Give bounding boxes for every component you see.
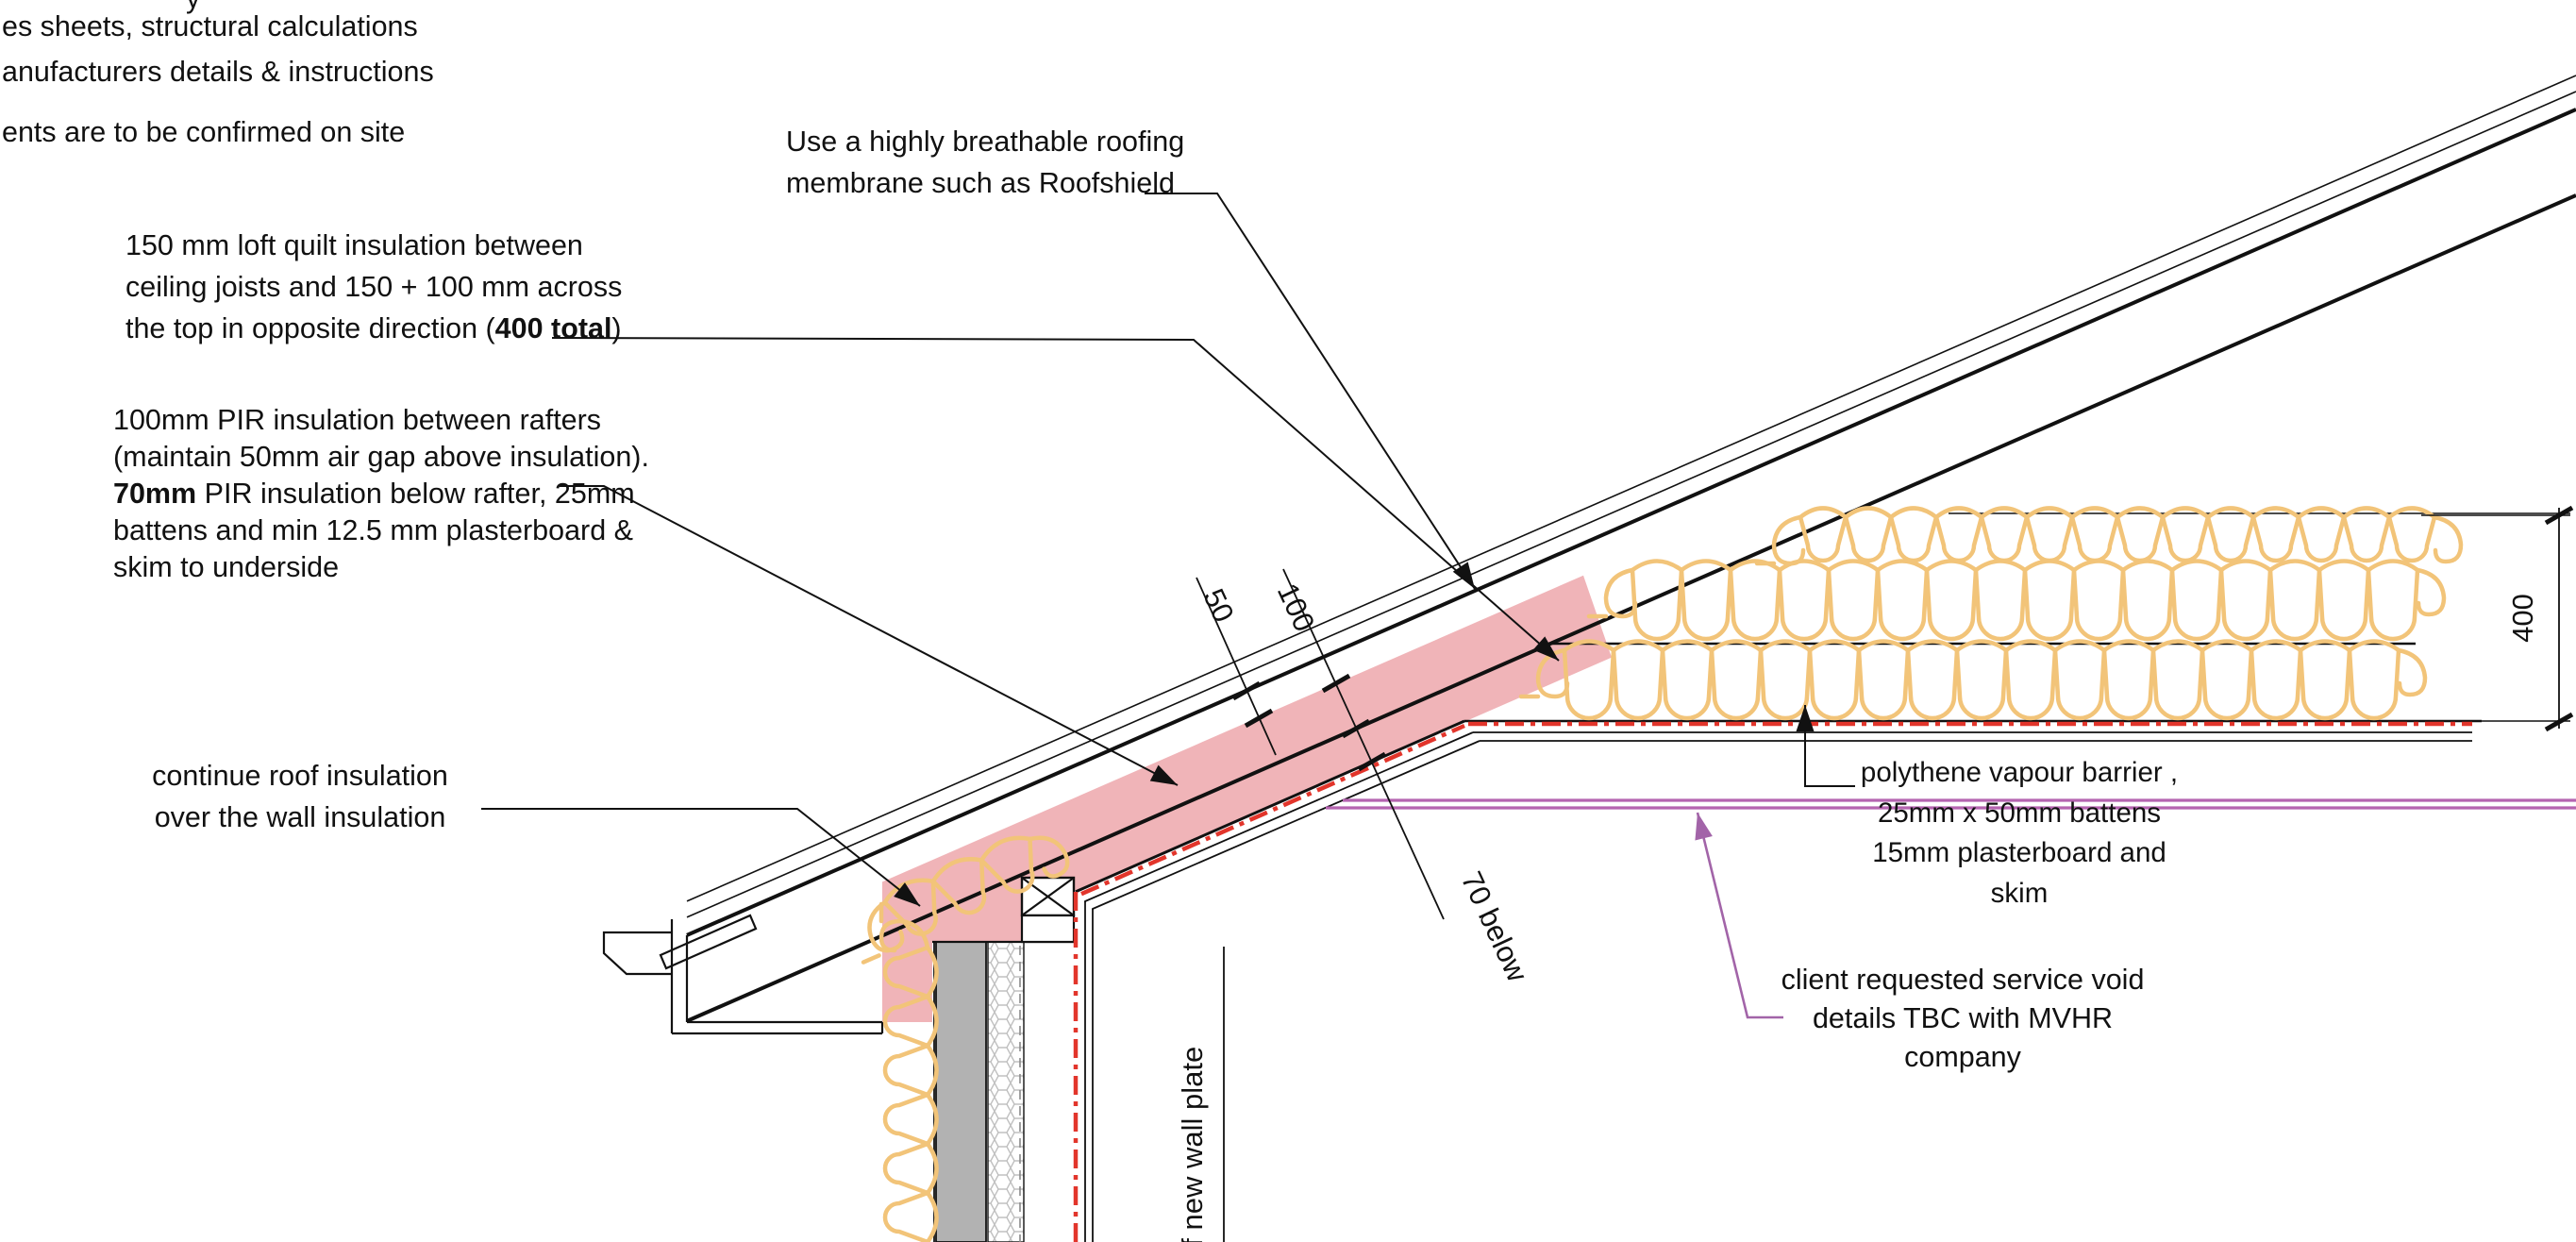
annotation-line: 15mm plasterboard and skim: [1845, 833, 2194, 914]
note-line: anufacturers details & instructions: [2, 49, 434, 94]
annotation-pir: 100mm PIR insulation between rafters (ma…: [113, 402, 649, 586]
construction-detail-drawing: 50 100 70 below 400 of new wall plate: [0, 0, 2576, 1242]
annotation-line: over the wall insulation: [111, 797, 489, 838]
annotation-line: (maintain 50mm air gap above insulation)…: [113, 439, 649, 476]
annotation-line: continue roof insulation: [111, 755, 489, 797]
annotation-service-void: client requested service void details TB…: [1765, 961, 2161, 1077]
annotation-line: the top in opposite direction (400 total…: [125, 308, 622, 349]
annotation-line: battens and min 12.5 mm plasterboard &: [113, 512, 649, 549]
annotation-line: membrane such as Roofshield: [786, 162, 1184, 204]
annotation-line: 25mm x 50mm battens: [1845, 794, 2194, 834]
annotation-line: skim to underside: [113, 549, 649, 586]
leader-lines: [481, 193, 1855, 1017]
annotation-membrane: Use a highly breathable roofing membrane…: [786, 121, 1184, 204]
note-block-documents: es sheets, structural calculations anufa…: [2, 4, 434, 94]
annotation-line: ceiling joists and 150 + 100 mm across: [125, 266, 622, 308]
dim-50-label: 50: [1196, 584, 1240, 628]
note-confirm-on-site: ents are to be confirmed on site: [2, 111, 405, 153]
annotation-vapour-barrier: polythene vapour barrier , 25mm x 50mm b…: [1845, 753, 2194, 914]
note-line: ents are to be confirmed on site: [2, 111, 405, 153]
annotation-line: Use a highly breathable roofing: [786, 121, 1184, 162]
annotation-line: 100mm PIR insulation between rafters: [113, 402, 649, 439]
wall-plate-vertical-label: of new wall plate: [1176, 1047, 1209, 1242]
dim-70-below-label: 70 below: [1455, 866, 1534, 987]
annotation-continue-insulation: continue roof insulation over the wall i…: [111, 755, 489, 838]
annotation-line: 70mm PIR insulation below rafter, 25mm: [113, 476, 649, 512]
annotation-line: 150 mm loft quilt insulation between: [125, 225, 622, 266]
dim-400-label: 400: [2506, 594, 2539, 643]
annotation-loft-quilt: 150 mm loft quilt insulation between cei…: [125, 225, 622, 349]
note-line: es sheets, structural calculations: [2, 4, 434, 49]
annotation-line: polythene vapour barrier ,: [1845, 753, 2194, 794]
drawing-canvas: 50 100 70 below 400 of new wall plate y …: [0, 0, 2576, 1242]
annotation-line: client requested service void: [1765, 961, 2161, 999]
annotation-line: details TBC with MVHR company: [1765, 999, 2161, 1077]
